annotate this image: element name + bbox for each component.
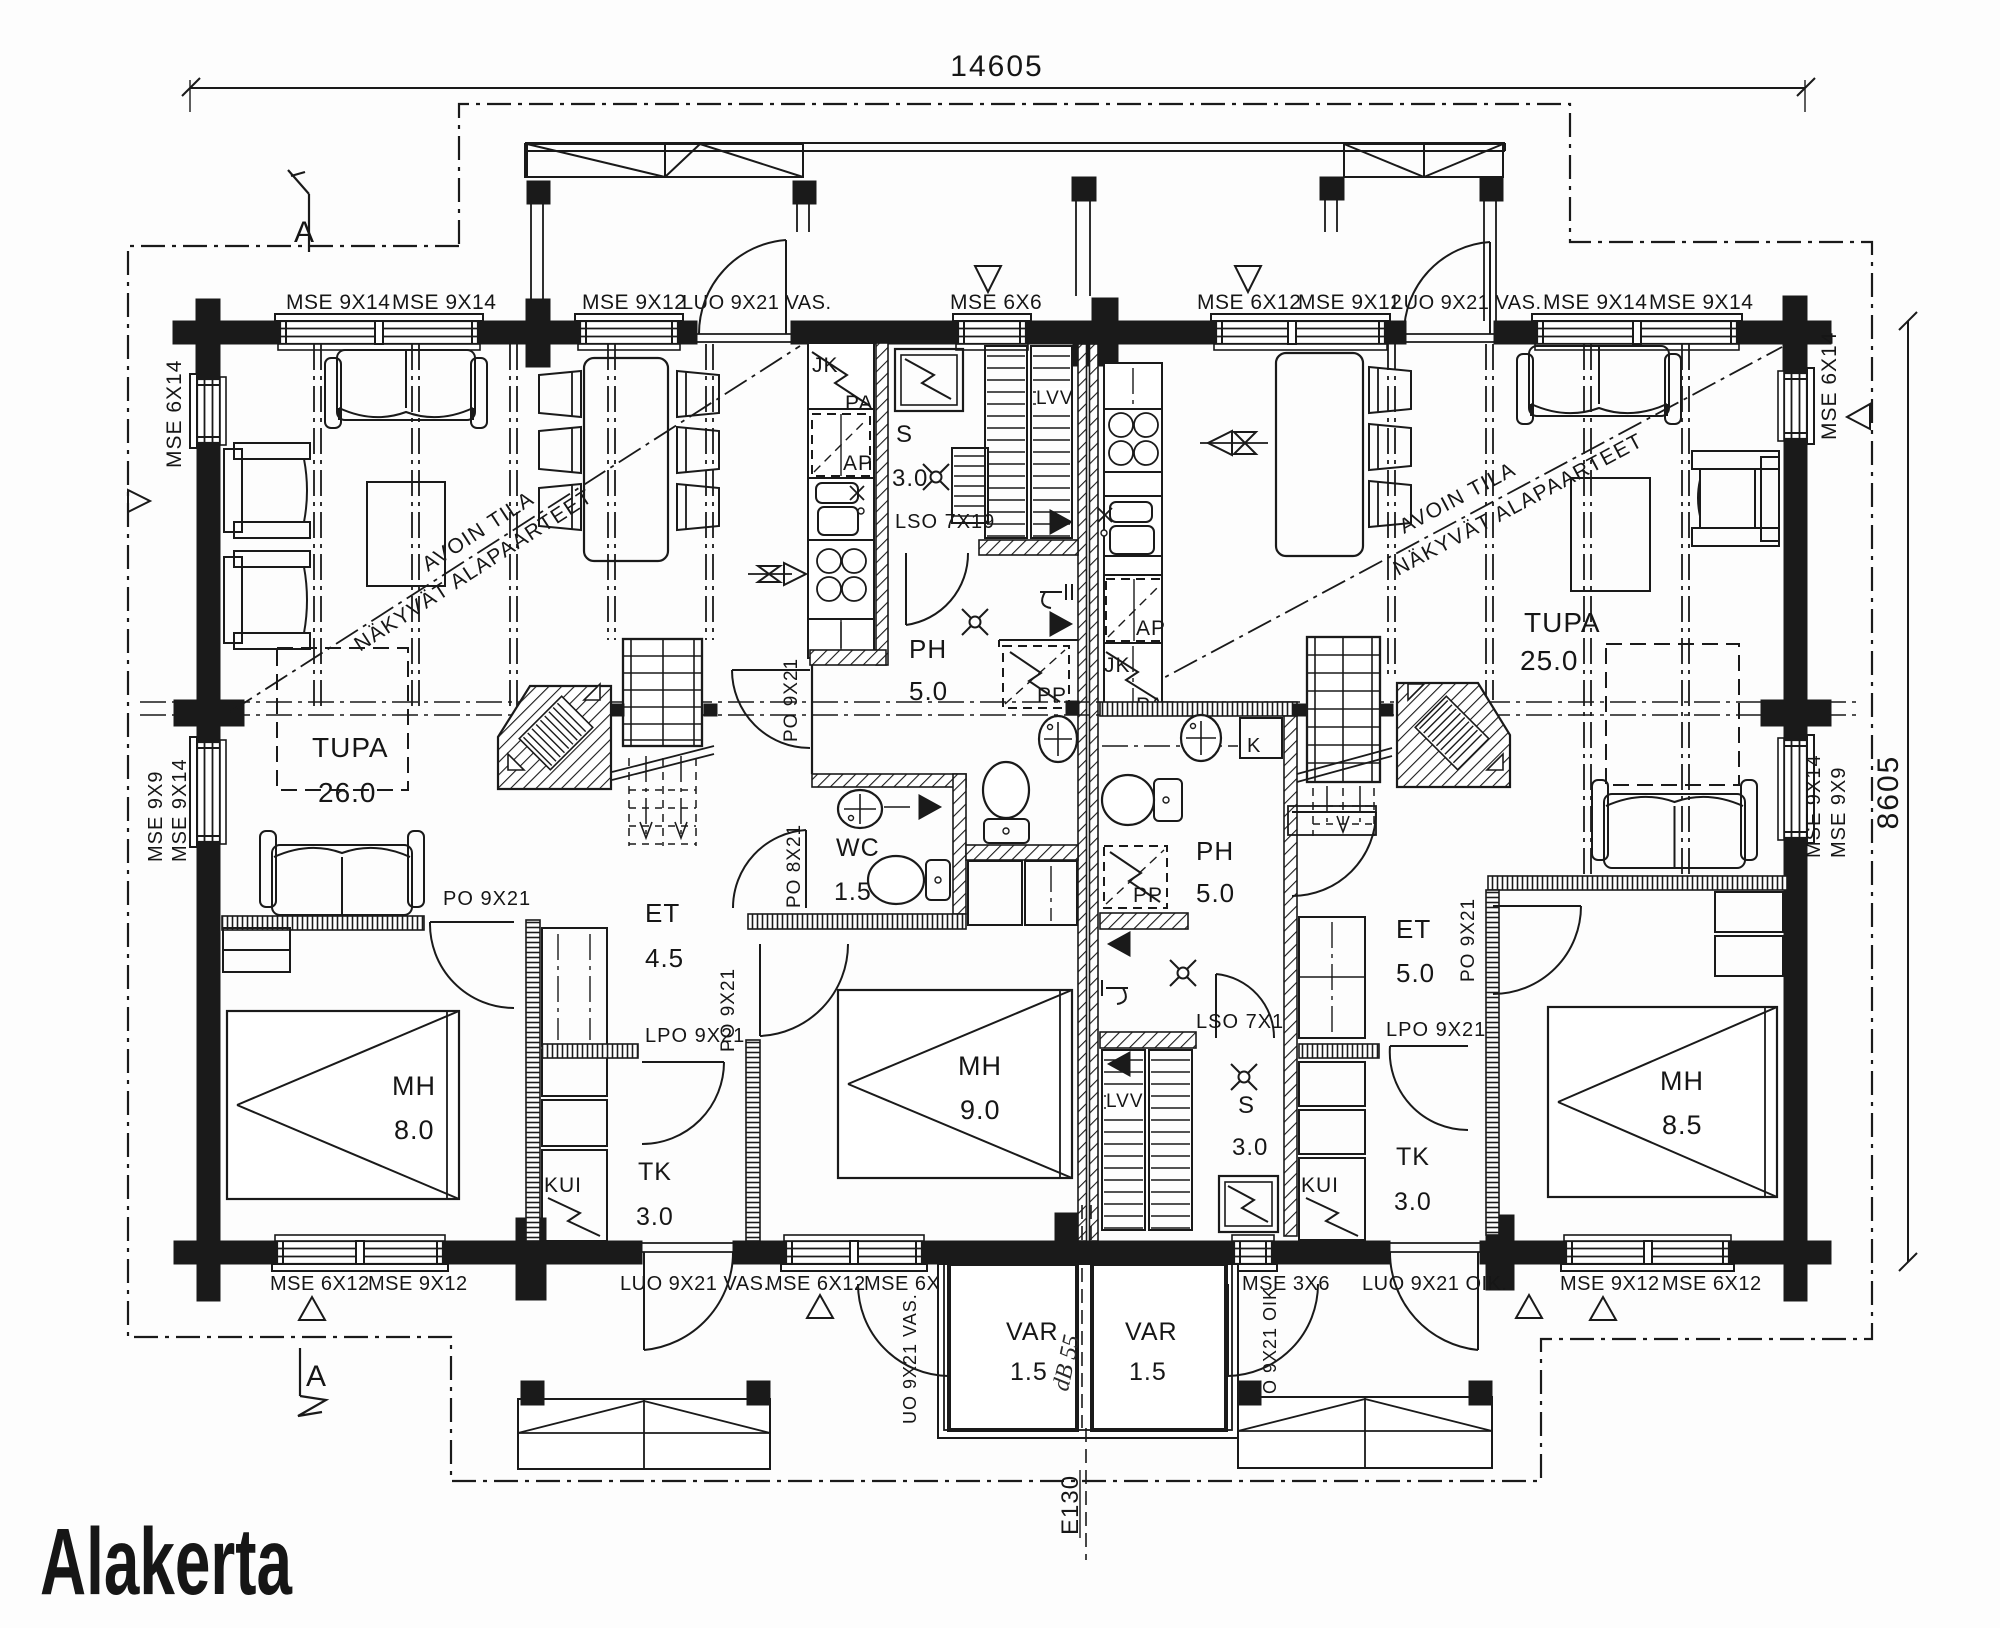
svg-text:MH: MH bbox=[1660, 1066, 1704, 1096]
svg-text:3.0: 3.0 bbox=[1232, 1134, 1268, 1161]
svg-text:MSE 6X6: MSE 6X6 bbox=[950, 291, 1042, 314]
svg-text:MSE 9X9: MSE 9X9 bbox=[1828, 767, 1850, 858]
svg-text:AP: AP bbox=[843, 452, 873, 475]
svg-text:LUO 9X21 VAS.: LUO 9X21 VAS. bbox=[620, 1273, 770, 1295]
svg-text:8.5: 8.5 bbox=[1662, 1110, 1703, 1140]
svg-text:JK: JK bbox=[812, 354, 839, 377]
svg-text:14605: 14605 bbox=[950, 50, 1043, 83]
svg-text:TUPA: TUPA bbox=[312, 732, 389, 763]
svg-text:TUPA: TUPA bbox=[1524, 607, 1601, 638]
svg-text:LVV: LVV bbox=[1106, 1091, 1144, 1112]
svg-text:PO 8X21: PO 8X21 bbox=[784, 824, 805, 908]
svg-text:VAR: VAR bbox=[1125, 1318, 1178, 1346]
svg-text:8.0: 8.0 bbox=[394, 1115, 435, 1145]
svg-text:TK: TK bbox=[1396, 1143, 1430, 1171]
svg-text:MSE 6X12: MSE 6X12 bbox=[1662, 1273, 1762, 1295]
svg-text:PP: PP bbox=[1037, 684, 1067, 707]
svg-text:25.0: 25.0 bbox=[1520, 645, 1579, 676]
svg-text:PO 9X21: PO 9X21 bbox=[718, 968, 739, 1052]
svg-text:A: A bbox=[294, 216, 315, 249]
svg-text:MSE 6X12: MSE 6X12 bbox=[270, 1273, 370, 1295]
svg-text:MH: MH bbox=[958, 1051, 1002, 1081]
svg-text:ET: ET bbox=[645, 898, 680, 928]
svg-text:MSE 9X14: MSE 9X14 bbox=[1803, 754, 1825, 858]
svg-text:K: K bbox=[1247, 735, 1261, 757]
svg-text:Alakerta: Alakerta bbox=[40, 1509, 293, 1615]
svg-text:KUI: KUI bbox=[1301, 1174, 1339, 1197]
svg-text:5.0: 5.0 bbox=[909, 676, 948, 706]
svg-text:1.5: 1.5 bbox=[1129, 1358, 1167, 1386]
svg-text:MSE 9X14: MSE 9X14 bbox=[1649, 291, 1753, 314]
svg-text:8605: 8605 bbox=[1872, 755, 1905, 830]
svg-text:5.0: 5.0 bbox=[1196, 878, 1235, 908]
svg-text:9.0: 9.0 bbox=[960, 1095, 1001, 1125]
svg-text:LVV: LVV bbox=[1036, 388, 1074, 409]
svg-text:PA: PA bbox=[845, 392, 873, 415]
svg-text:MSE 9X12: MSE 9X12 bbox=[1298, 291, 1402, 314]
svg-text:MSE 9X14: MSE 9X14 bbox=[169, 758, 191, 862]
svg-text:UO 9X21 VAS.: UO 9X21 VAS. bbox=[900, 1293, 920, 1424]
svg-text:MSE 9X12: MSE 9X12 bbox=[582, 291, 686, 314]
svg-text:1.5: 1.5 bbox=[834, 878, 872, 906]
svg-text:PH: PH bbox=[909, 634, 947, 664]
svg-text:A: A bbox=[306, 1360, 327, 1393]
svg-text:MSE 6X14: MSE 6X14 bbox=[163, 360, 186, 468]
svg-text:LUO 9X21 OIK.: LUO 9X21 OIK. bbox=[1362, 1273, 1507, 1295]
svg-text:VAR: VAR bbox=[1006, 1318, 1059, 1346]
svg-text:S: S bbox=[1238, 1092, 1255, 1119]
svg-text:MSE 9X14: MSE 9X14 bbox=[392, 291, 496, 314]
svg-text:ET: ET bbox=[1396, 914, 1431, 944]
svg-text:5.0: 5.0 bbox=[1396, 958, 1435, 988]
svg-text:MSE 9X14: MSE 9X14 bbox=[286, 291, 390, 314]
svg-text:KUI: KUI bbox=[544, 1174, 582, 1197]
svg-text:3.0: 3.0 bbox=[1394, 1188, 1432, 1216]
svg-text:PO 9X21: PO 9X21 bbox=[1458, 898, 1479, 982]
svg-text:3.0: 3.0 bbox=[636, 1203, 674, 1231]
svg-text:LSO 7X19: LSO 7X19 bbox=[1196, 1011, 1296, 1033]
svg-text:LPO 9X21: LPO 9X21 bbox=[1386, 1019, 1486, 1041]
svg-text:PO 9X21: PO 9X21 bbox=[443, 888, 531, 910]
svg-text:MSE 9X12: MSE 9X12 bbox=[368, 1273, 468, 1295]
svg-text:MSE 9X12: MSE 9X12 bbox=[1560, 1273, 1660, 1295]
svg-text:WC: WC bbox=[836, 834, 880, 862]
svg-text:MH: MH bbox=[392, 1071, 436, 1101]
svg-text:1.5: 1.5 bbox=[1010, 1358, 1048, 1386]
svg-text:LUO 9X21 VAS.: LUO 9X21 VAS. bbox=[1392, 292, 1542, 314]
svg-text:TK: TK bbox=[638, 1158, 672, 1186]
svg-text:MSE 6X12: MSE 6X12 bbox=[766, 1273, 866, 1295]
svg-text:26.0: 26.0 bbox=[318, 777, 377, 808]
svg-text:3.0: 3.0 bbox=[892, 465, 928, 492]
svg-text:MSE 9X9: MSE 9X9 bbox=[145, 771, 167, 862]
svg-text:S: S bbox=[896, 421, 913, 448]
svg-text:MSE 6X12: MSE 6X12 bbox=[1197, 291, 1301, 314]
svg-text:PP: PP bbox=[1133, 884, 1163, 907]
svg-text:AP: AP bbox=[1136, 617, 1166, 640]
svg-text:UO 9X21 OIK: UO 9X21 OIK bbox=[1260, 1287, 1280, 1408]
svg-text:PH: PH bbox=[1196, 836, 1234, 866]
svg-text:MSE 9X14: MSE 9X14 bbox=[1543, 291, 1647, 314]
svg-text:MSE 6X14: MSE 6X14 bbox=[1818, 332, 1841, 440]
svg-text:4.5: 4.5 bbox=[645, 943, 684, 973]
